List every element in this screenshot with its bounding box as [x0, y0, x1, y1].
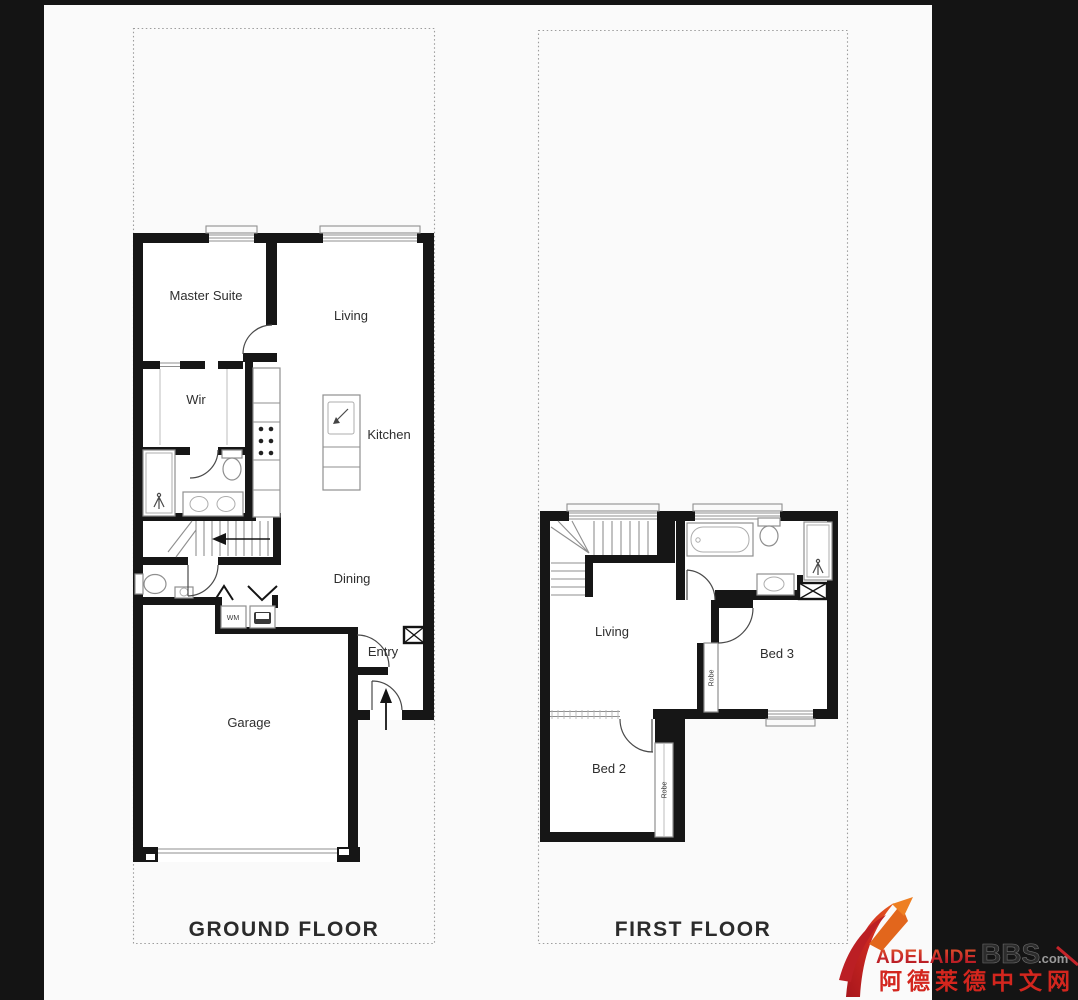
meter-box-icon [404, 627, 424, 643]
room-label-bed3: Bed 3 [760, 646, 794, 661]
vanity-icon [183, 492, 243, 516]
robe-label: Robe [709, 670, 716, 687]
toilet-icon [135, 574, 143, 594]
kitchen-counter [253, 368, 280, 517]
first-floor-title: FIRST FLOOR [615, 918, 772, 941]
watermark-chinese-text: 阿德莱德中文网 [879, 968, 1075, 994]
room-label-entry: Entry [368, 644, 399, 659]
robe-bed2: Robe [655, 743, 673, 837]
room-label-living: Living [334, 308, 368, 323]
linen-box-icon [799, 583, 827, 599]
toilet-icon [222, 450, 242, 458]
garage-post-notch [146, 854, 155, 860]
robe-bed3: Robe [704, 643, 718, 712]
floorplan-canvas: Master Suite Living Wir Kitchen Dining E… [0, 0, 1078, 1000]
bathtub-icon [687, 523, 753, 556]
room-label-garage: Garage [227, 715, 270, 730]
ground-floor-title: GROUND FLOOR [189, 918, 380, 941]
room-label-kitchen: Kitchen [367, 427, 410, 442]
floorplan-image: Master Suite Living Wir Kitchen Dining E… [0, 0, 1078, 1000]
watermark-brand-text: Adelaide [876, 947, 977, 968]
robe-label: Robe [662, 782, 669, 799]
room-label-master: Master Suite [170, 288, 243, 303]
garage-post-notch [339, 849, 349, 855]
room-label-wm: WM [227, 615, 240, 622]
toilet-icon [758, 518, 780, 526]
kitchen-island [323, 395, 360, 490]
room-label-dining: Dining [334, 571, 371, 586]
watermark-bbs-text: BBS [981, 938, 1040, 969]
room-label-living: Living [595, 624, 629, 639]
room-label-wir: Wir [186, 392, 206, 407]
room-label-bed2: Bed 2 [592, 761, 626, 776]
